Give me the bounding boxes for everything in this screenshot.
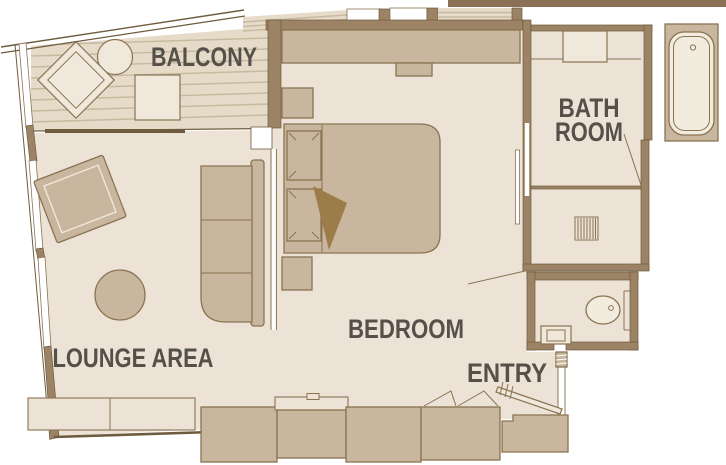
balcony-divider-wall	[268, 20, 281, 128]
floor-plan: BALCONY LOUNGE AREA BEDROOM BATH ROOM EN…	[0, 0, 726, 465]
mirror	[516, 150, 520, 224]
wc-bottom-wall	[566, 342, 638, 350]
tv	[396, 63, 432, 76]
entry-threshold-step	[502, 415, 568, 452]
wc-right-wall	[630, 272, 638, 350]
desk	[275, 394, 348, 459]
floor-plan-canvas: BALCONY LOUNGE AREA BEDROOM BATH ROOM EN…	[0, 0, 726, 465]
balcony-label: BALCONY	[151, 42, 257, 72]
bedroom-top-wall	[266, 20, 523, 30]
ottoman-table	[95, 270, 145, 320]
wc-top-wall	[527, 272, 638, 280]
sofa-seat	[201, 166, 252, 322]
bathtub	[669, 32, 714, 135]
pillow	[287, 131, 321, 180]
sofa	[201, 160, 264, 326]
lounge-label: LOUNGE AREA	[53, 343, 214, 373]
wc-room	[527, 272, 638, 350]
entry-label: ENTRY	[467, 358, 547, 388]
shower-right-wall	[641, 140, 649, 270]
wc-sink	[541, 326, 571, 344]
lounge-cabinet	[28, 398, 195, 430]
bathroom-label-line2: ROOM	[555, 117, 623, 147]
shower-bottom-wall	[523, 264, 649, 271]
bed	[284, 124, 440, 253]
bedroom-counter	[282, 30, 520, 63]
bathtub-alcove	[665, 24, 718, 141]
bathroom-right-wall	[644, 25, 652, 140]
balcony-sliding-door	[45, 129, 185, 133]
cabinet	[346, 407, 421, 462]
bathroom-sink	[563, 31, 607, 62]
bathroom-pocket-door	[525, 123, 529, 196]
bathroom-top-wall	[531, 25, 652, 31]
sofa-backrest	[251, 160, 264, 326]
entry-door-hinge	[556, 352, 567, 367]
nightstand	[282, 257, 312, 290]
wc-left-wall	[527, 272, 535, 350]
balcony-table	[135, 75, 180, 120]
cabinet	[201, 407, 277, 462]
nightstand	[282, 88, 313, 118]
pillar	[251, 127, 272, 149]
shower-divider	[531, 186, 641, 189]
hull-top-band	[448, 0, 726, 7]
lounge-bedroom-partition	[271, 149, 277, 330]
bedroom-label: BEDROOM	[348, 314, 464, 344]
